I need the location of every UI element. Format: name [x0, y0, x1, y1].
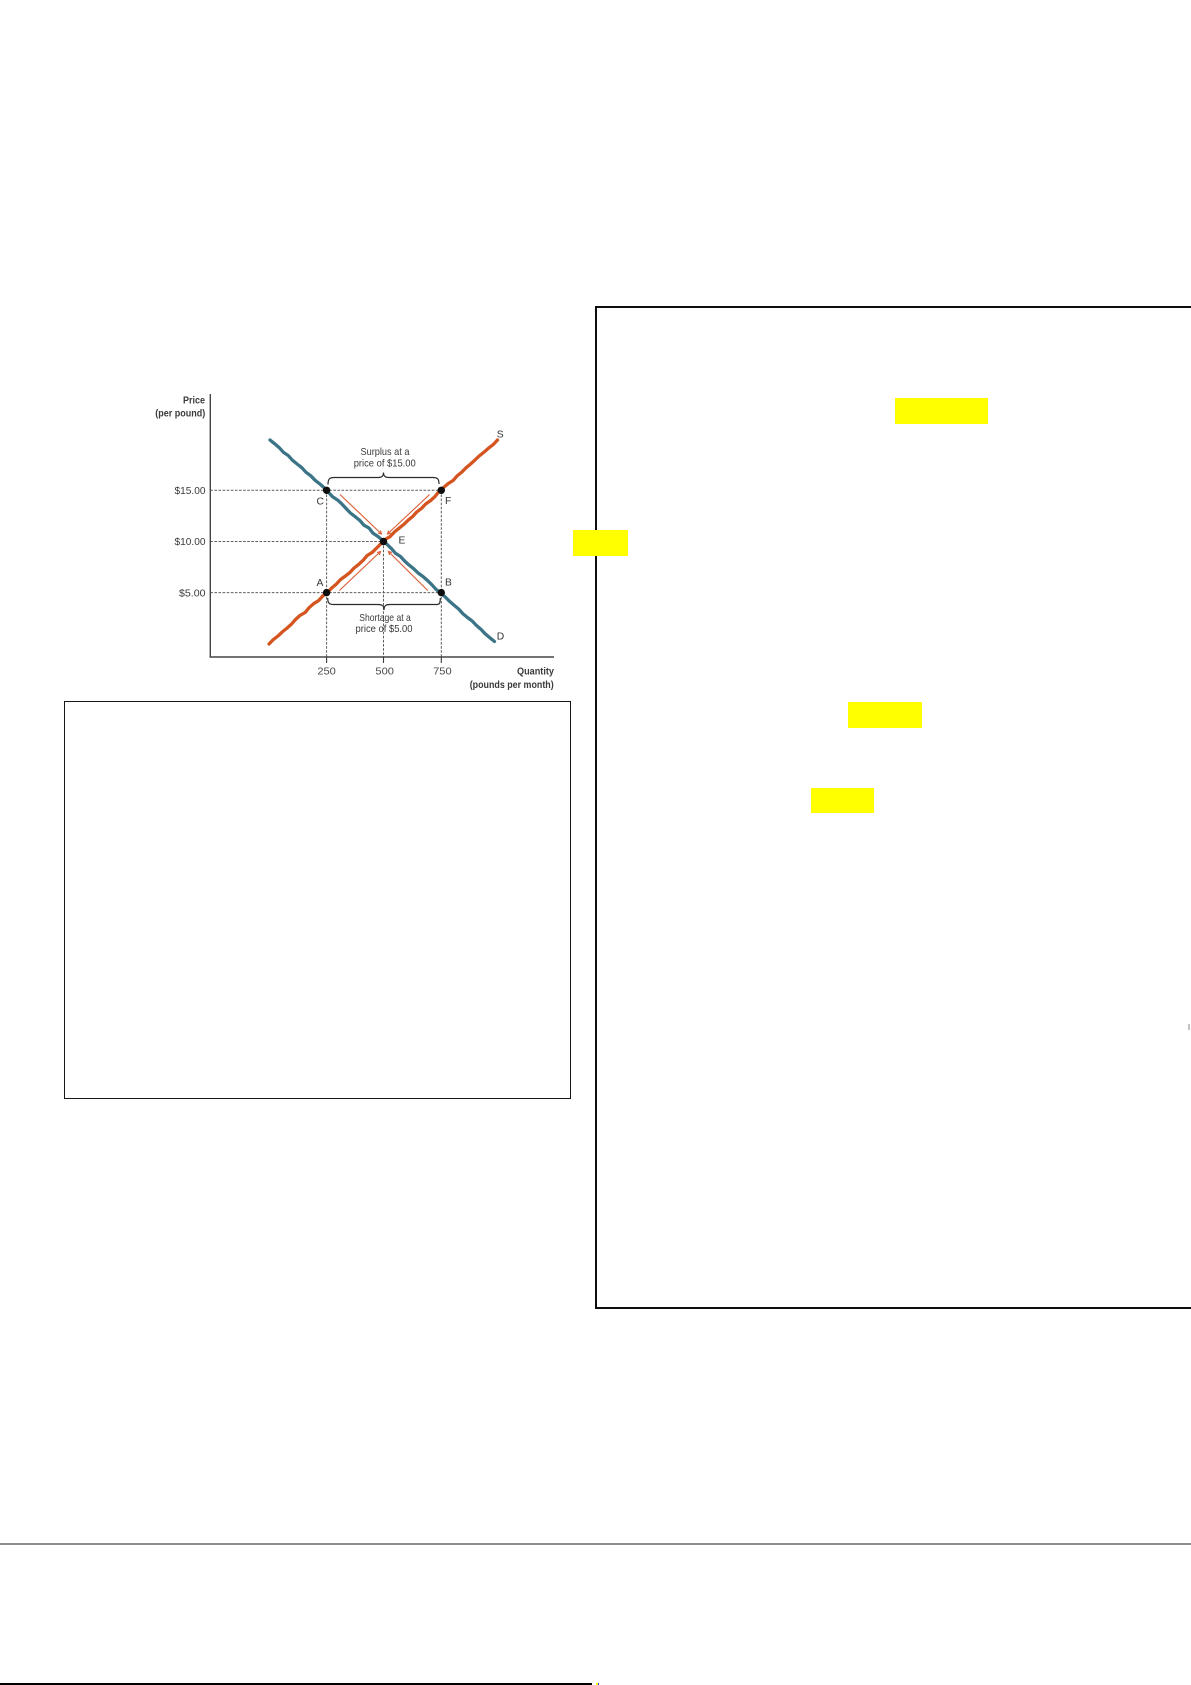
svg-text:D: D: [497, 632, 504, 643]
svg-text:(per pound): (per pound): [155, 408, 205, 420]
svg-text:F: F: [445, 496, 451, 507]
svg-text:price of $15.00: price of $15.00: [354, 459, 416, 470]
svg-text:$15.00: $15.00: [175, 485, 206, 497]
svg-text:S: S: [497, 430, 504, 441]
svg-text:Shortage at a: Shortage at a: [359, 613, 411, 624]
svg-text:E: E: [399, 536, 406, 547]
svg-text:A: A: [317, 578, 324, 589]
svg-text:B: B: [445, 578, 452, 589]
svg-text:(pounds per month): (pounds per month): [470, 679, 554, 691]
svg-text:250: 250: [317, 666, 336, 678]
svg-text:price of $5.00: price of $5.00: [356, 624, 413, 635]
svg-text:$10.00: $10.00: [175, 536, 206, 548]
svg-text:750: 750: [433, 666, 452, 678]
svg-text:$5.00: $5.00: [179, 587, 206, 599]
svg-text:Quantity: Quantity: [517, 666, 554, 678]
svg-text:Price: Price: [183, 395, 205, 407]
svg-text:500: 500: [375, 666, 394, 678]
svg-text:C: C: [317, 497, 325, 508]
svg-text:Surplus at a: Surplus at a: [361, 447, 410, 458]
